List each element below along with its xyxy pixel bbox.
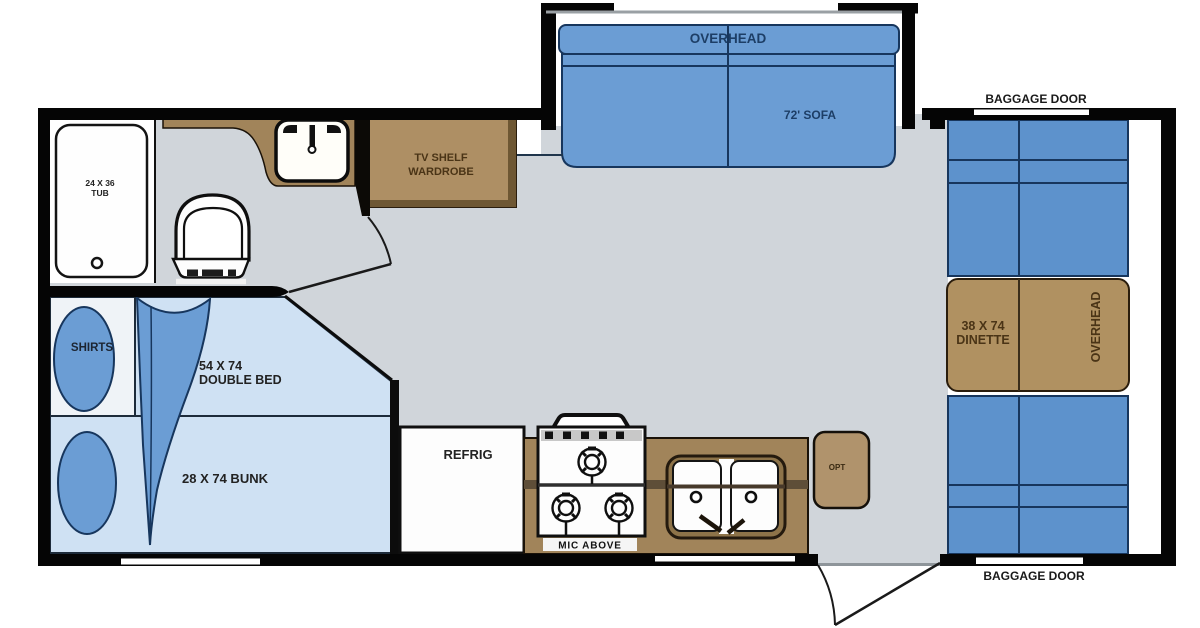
- svg-text:WARDROBE: WARDROBE: [408, 166, 473, 178]
- svg-text:OPT: OPT: [829, 463, 846, 472]
- svg-text:72' SOFA: 72' SOFA: [784, 108, 837, 122]
- svg-text:MIC ABOVE: MIC ABOVE: [558, 541, 622, 552]
- svg-text:DOUBLE BED: DOUBLE BED: [199, 373, 282, 387]
- svg-text:TUB: TUB: [91, 188, 108, 198]
- svg-text:BAGGAGE DOOR: BAGGAGE DOOR: [985, 92, 1087, 106]
- svg-text:DINETTE: DINETTE: [956, 333, 1009, 347]
- svg-text:54 X 74: 54 X 74: [199, 359, 242, 373]
- svg-text:OVERHEAD: OVERHEAD: [1089, 292, 1103, 363]
- svg-text:SHIRTS: SHIRTS: [71, 342, 114, 354]
- svg-text:REFRIG: REFRIG: [443, 447, 492, 462]
- svg-text:BAGGAGE DOOR: BAGGAGE DOOR: [983, 569, 1085, 583]
- svg-text:TV SHELF: TV SHELF: [414, 152, 467, 164]
- svg-text:24 X 36: 24 X 36: [85, 178, 115, 188]
- svg-text:38 X 74: 38 X 74: [961, 319, 1004, 333]
- svg-text:28 X 74 BUNK: 28 X 74 BUNK: [182, 471, 269, 486]
